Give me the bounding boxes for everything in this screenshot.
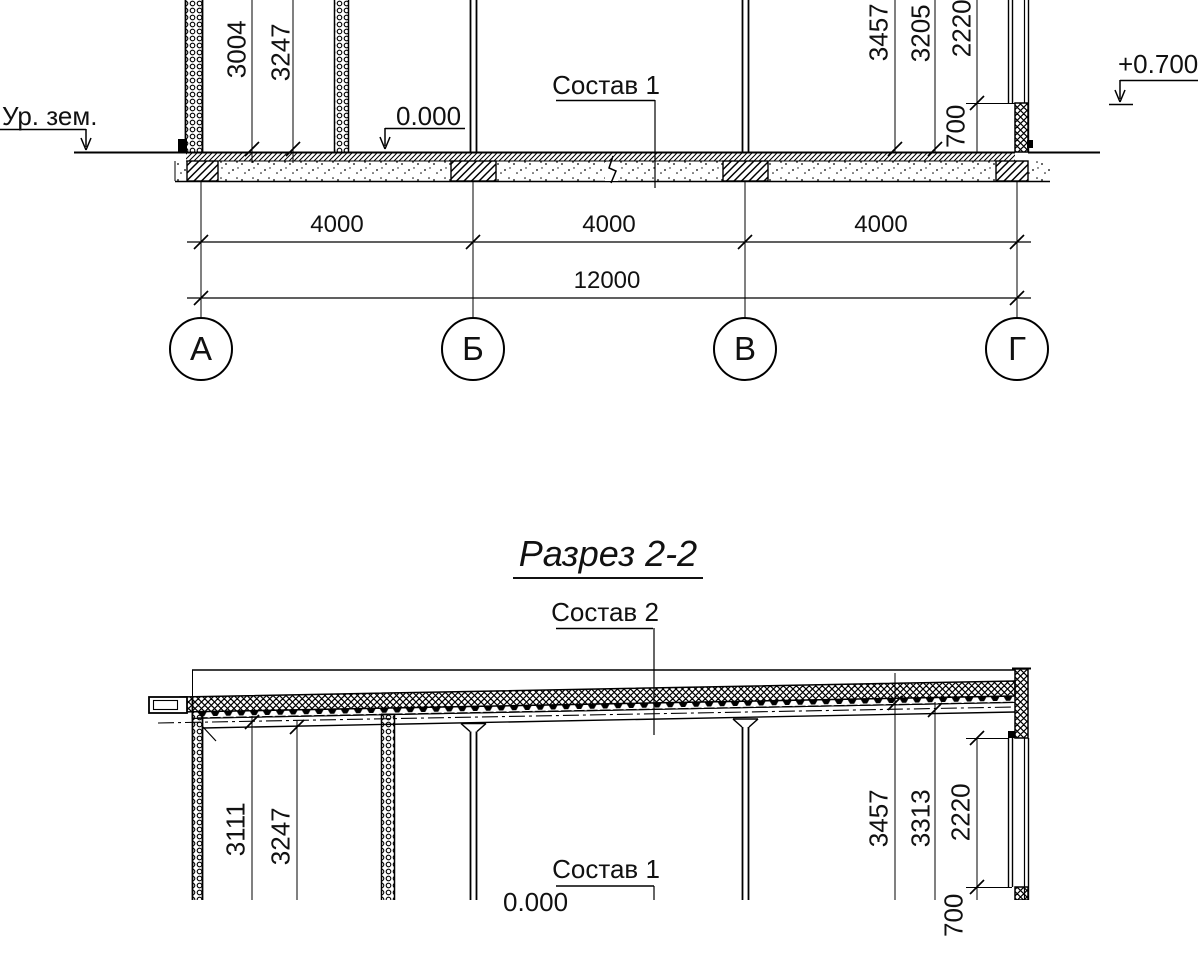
dim-label-3457-s2: 3457 [865,758,894,878]
level-zero-label-s2: 0.000 [503,888,568,917]
level-plus-0700-label: +0.700 [1118,50,1198,79]
level-mark-zero-s1 [380,128,465,149]
level-zero-label-s1: 0.000 [396,102,461,131]
section-2-2-title: Разрез 2-2 [513,534,703,579]
span-dim-v-g: 4000 [821,212,941,238]
dim-label-3004: 3004 [223,0,252,109]
axis-bubble-g: Г [985,330,1049,368]
level-mark-plus-0700 [1109,80,1198,105]
dim-label-3457-s1: 3457 [865,0,894,92]
ground-level-label: Ур. зем. [2,102,97,131]
axis-bubble-a: А [169,330,233,368]
dim-label-3111: 3111 [222,769,251,889]
blueprint-page: { "section1": { "ground_label": "Ур. зем… [0,0,1200,900]
dim-label-3205: 3205 [907,0,936,93]
dim-label-3313: 3313 [907,758,936,878]
dim-label-700-s1: 700 [942,66,971,186]
dim-label-2220-s2: 2220 [947,752,976,872]
composition1-label-s2: Состав 1 [546,855,666,884]
ground-level-mark [0,129,91,150]
composition2-label: Состав 2 [545,598,665,627]
composition1-label-s1: Состав 1 [546,71,666,100]
axis-bubble-v: В [713,330,777,368]
total-dim-label: 12000 [547,268,667,294]
span-dim-b-v: 4000 [549,212,669,238]
axis-bubble-b: Б [441,330,505,368]
dim-label-700-s2: 700 [940,855,969,975]
section-drawing-canvas [0,0,1200,900]
dim-label-3247-s1: 3247 [267,0,296,112]
span-dim-a-b: 4000 [277,212,397,238]
dim-label-3247-s2: 3247 [267,776,296,896]
